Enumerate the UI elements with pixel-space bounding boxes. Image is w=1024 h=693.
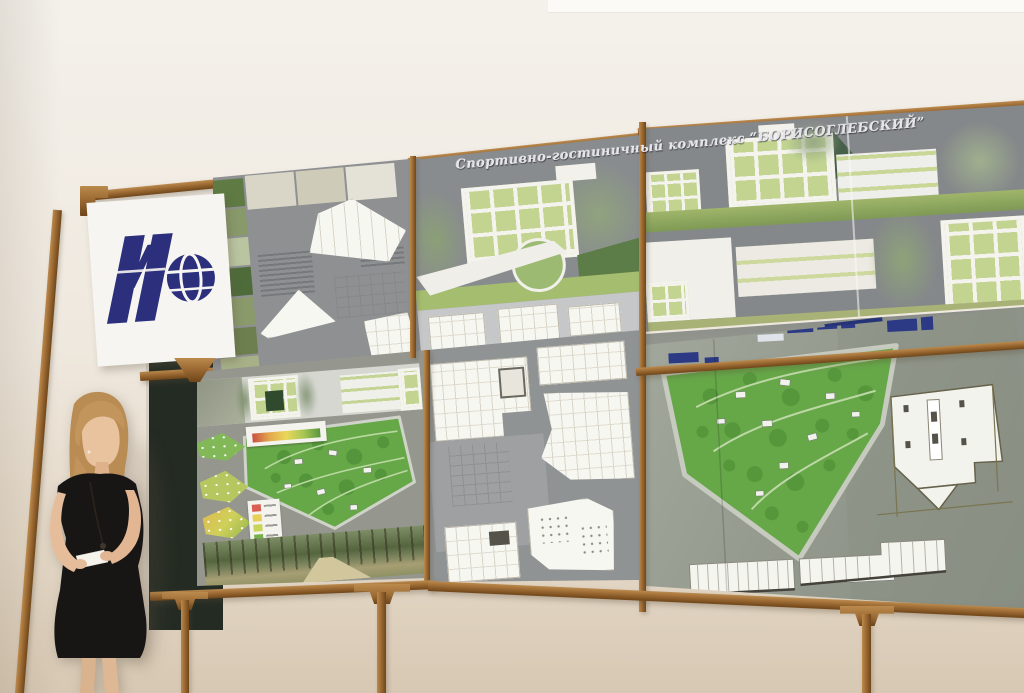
plan-dark-core (489, 530, 510, 546)
legend-swatch (252, 514, 262, 522)
board-top-middle-render (412, 135, 642, 355)
dimension-lines (334, 270, 407, 318)
plan-core-detail (498, 367, 526, 399)
ceiling-strip (548, 0, 1024, 13)
floor-plan (568, 302, 622, 336)
presenter-leg-left (80, 658, 96, 693)
legend-labels (264, 504, 279, 541)
presentation-room-photo: Спортивно-гостиничный комплекс “БОРИСОГЛ… (0, 0, 1024, 693)
floor-plan-irregular (536, 387, 635, 486)
presenter-woman (12, 386, 172, 693)
dimension-lines (448, 442, 513, 507)
wood-post-3 (862, 614, 871, 693)
elevation-grid-wedge (397, 367, 422, 411)
floor-plan (536, 341, 627, 386)
tree-blur (866, 209, 940, 311)
floor-plan (428, 312, 487, 351)
legend-swatch (253, 524, 263, 532)
table-dots (579, 523, 610, 559)
photo-thumb (245, 172, 296, 210)
table-dots (538, 513, 574, 544)
render-grid-corner (646, 280, 690, 322)
presenter-hand-right (100, 551, 114, 561)
elevation-white-building (340, 371, 401, 413)
wood-post-2 (377, 592, 386, 693)
floor-plan-restaurant (527, 496, 619, 577)
annotation-text-block (258, 250, 315, 297)
photo-thumb (346, 163, 397, 201)
legend-swatch (252, 504, 262, 512)
presenter-hand-left (73, 559, 87, 569)
presenter-pendant (100, 543, 106, 549)
elevation-dark-core (265, 390, 285, 411)
photo-thumb (295, 167, 346, 205)
presenter-leg-right (102, 658, 119, 693)
legend-gradient-bar (252, 428, 320, 442)
presenter-earring (87, 450, 90, 453)
wood-seam-top (410, 156, 416, 358)
interior-photo-strip (245, 163, 397, 210)
wood-seam-bottom (424, 350, 430, 582)
wood-post-1 (181, 600, 189, 693)
board-top-left-photos (213, 158, 420, 378)
floor-plan (444, 522, 520, 582)
board-bottom-middle-plans (429, 330, 642, 582)
institute-logo (101, 224, 220, 332)
render-grid-building (940, 215, 1024, 312)
board-bottom-left-masterplan (197, 350, 427, 586)
logo-banner (86, 193, 235, 366)
